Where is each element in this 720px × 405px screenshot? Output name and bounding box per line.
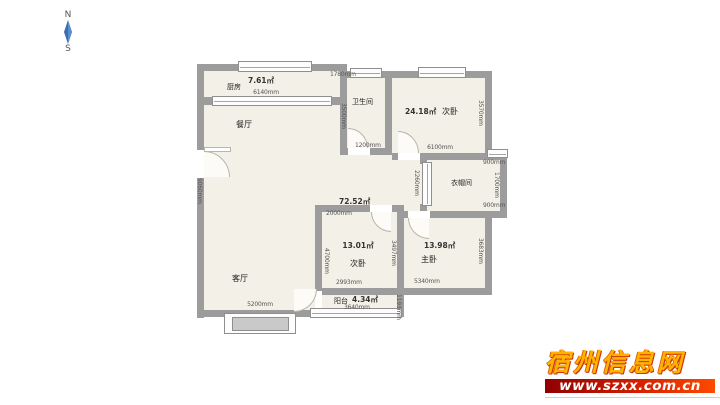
cloakroom-window — [487, 149, 508, 158]
watermark: 宿州信息网 www.szxx.com.cn — [545, 348, 715, 398]
cloakroom-dim-left: 2260mm — [413, 170, 419, 196]
dining-label: 餐厅 — [236, 121, 252, 129]
wall-bedroom-mid-master — [397, 205, 404, 295]
bedroom-top-label: 次卧 — [442, 108, 458, 116]
bedroom-mid-area: 13.01㎡ — [337, 242, 379, 250]
wall-right-master — [485, 211, 492, 295]
master-door-opening — [408, 211, 430, 218]
watermark-divider — [545, 397, 720, 398]
wall-left-upper — [197, 64, 204, 150]
bedroom-mid-door-opening — [370, 205, 392, 212]
bay-window-inner — [232, 317, 289, 331]
outer-dim-left: 9060mm — [196, 178, 202, 204]
cloakroom-dim-right: 1700mm — [493, 172, 499, 198]
kitchen-dim-width: 6140mm — [238, 90, 294, 96]
master-dim-right: 3683mm — [477, 238, 483, 264]
kitchen-top-window — [238, 61, 312, 72]
bedroom-mid-dim-bottom: 2993mm — [336, 280, 362, 286]
bedroom-top-dim-right: 3570mm — [477, 100, 483, 126]
master-area: 13.98㎡ — [424, 242, 455, 250]
bedroom-top-area: 24.18㎡ — [405, 108, 436, 116]
floorplan-page: N S — [0, 0, 720, 405]
wall-balcony-top — [315, 288, 404, 295]
bathroom-dim-left: 3500mm — [340, 103, 346, 129]
floor-cutout — [404, 295, 492, 311]
compass-needle-icon — [63, 20, 73, 44]
cloakroom-sliding-door — [422, 162, 432, 206]
entry-door-leaf — [204, 147, 231, 152]
compass: N S — [58, 10, 78, 58]
cloakroom-dim-top: 900mm — [483, 160, 505, 166]
living-bay-window — [224, 313, 296, 334]
bathroom-label: 卫生间 — [352, 99, 373, 106]
bathroom-dim-bottom: 1200mm — [355, 143, 381, 149]
living-dim-width: 5200mm — [235, 302, 285, 308]
wall-master-bottom — [397, 288, 492, 295]
balcony-dim-right: 1193mm — [395, 294, 401, 320]
bedroom-mid-label: 次卧 — [343, 260, 373, 268]
balcony-area: 4.34㎡ — [352, 296, 378, 304]
watermark-site-name: 宿州信息网 — [545, 348, 715, 378]
bedroom-top-dim-bottom: 6100mm — [415, 145, 465, 151]
master-label: 主卧 — [421, 256, 437, 264]
bedroom-top-window — [418, 67, 466, 78]
kitchen-pass-window — [212, 96, 332, 106]
entry-door-opening — [197, 150, 204, 178]
living-label: 客厅 — [232, 275, 248, 283]
balcony-dim-bottom: 3640mm — [344, 305, 370, 311]
master-dim-bottom: 5340mm — [414, 279, 440, 285]
cloakroom-dim-bottom: 900mm — [483, 203, 505, 209]
wall-bathroom-bedroom — [385, 71, 392, 155]
watermark-url: www.szxx.com.cn — [545, 379, 715, 393]
cloakroom-label: 衣帽间 — [451, 180, 472, 187]
hall-area: 72.52㎡ — [339, 198, 370, 206]
bedroom-mid-dim-right: 3497mm — [390, 240, 396, 266]
bathroom-dim-top: 1780mm — [330, 72, 356, 78]
kitchen-area: 7.61㎡ — [248, 77, 274, 85]
bathroom-door-opening — [348, 148, 370, 155]
hall-dim: 2000mm — [326, 211, 352, 217]
bedroom-mid-dim-left: 4700mm — [323, 248, 329, 274]
bedroom-top-door-opening — [398, 153, 420, 160]
compass-south-label: S — [58, 44, 78, 54]
compass-north-label: N — [58, 10, 78, 20]
wall-right-bedroom-top — [485, 71, 492, 160]
